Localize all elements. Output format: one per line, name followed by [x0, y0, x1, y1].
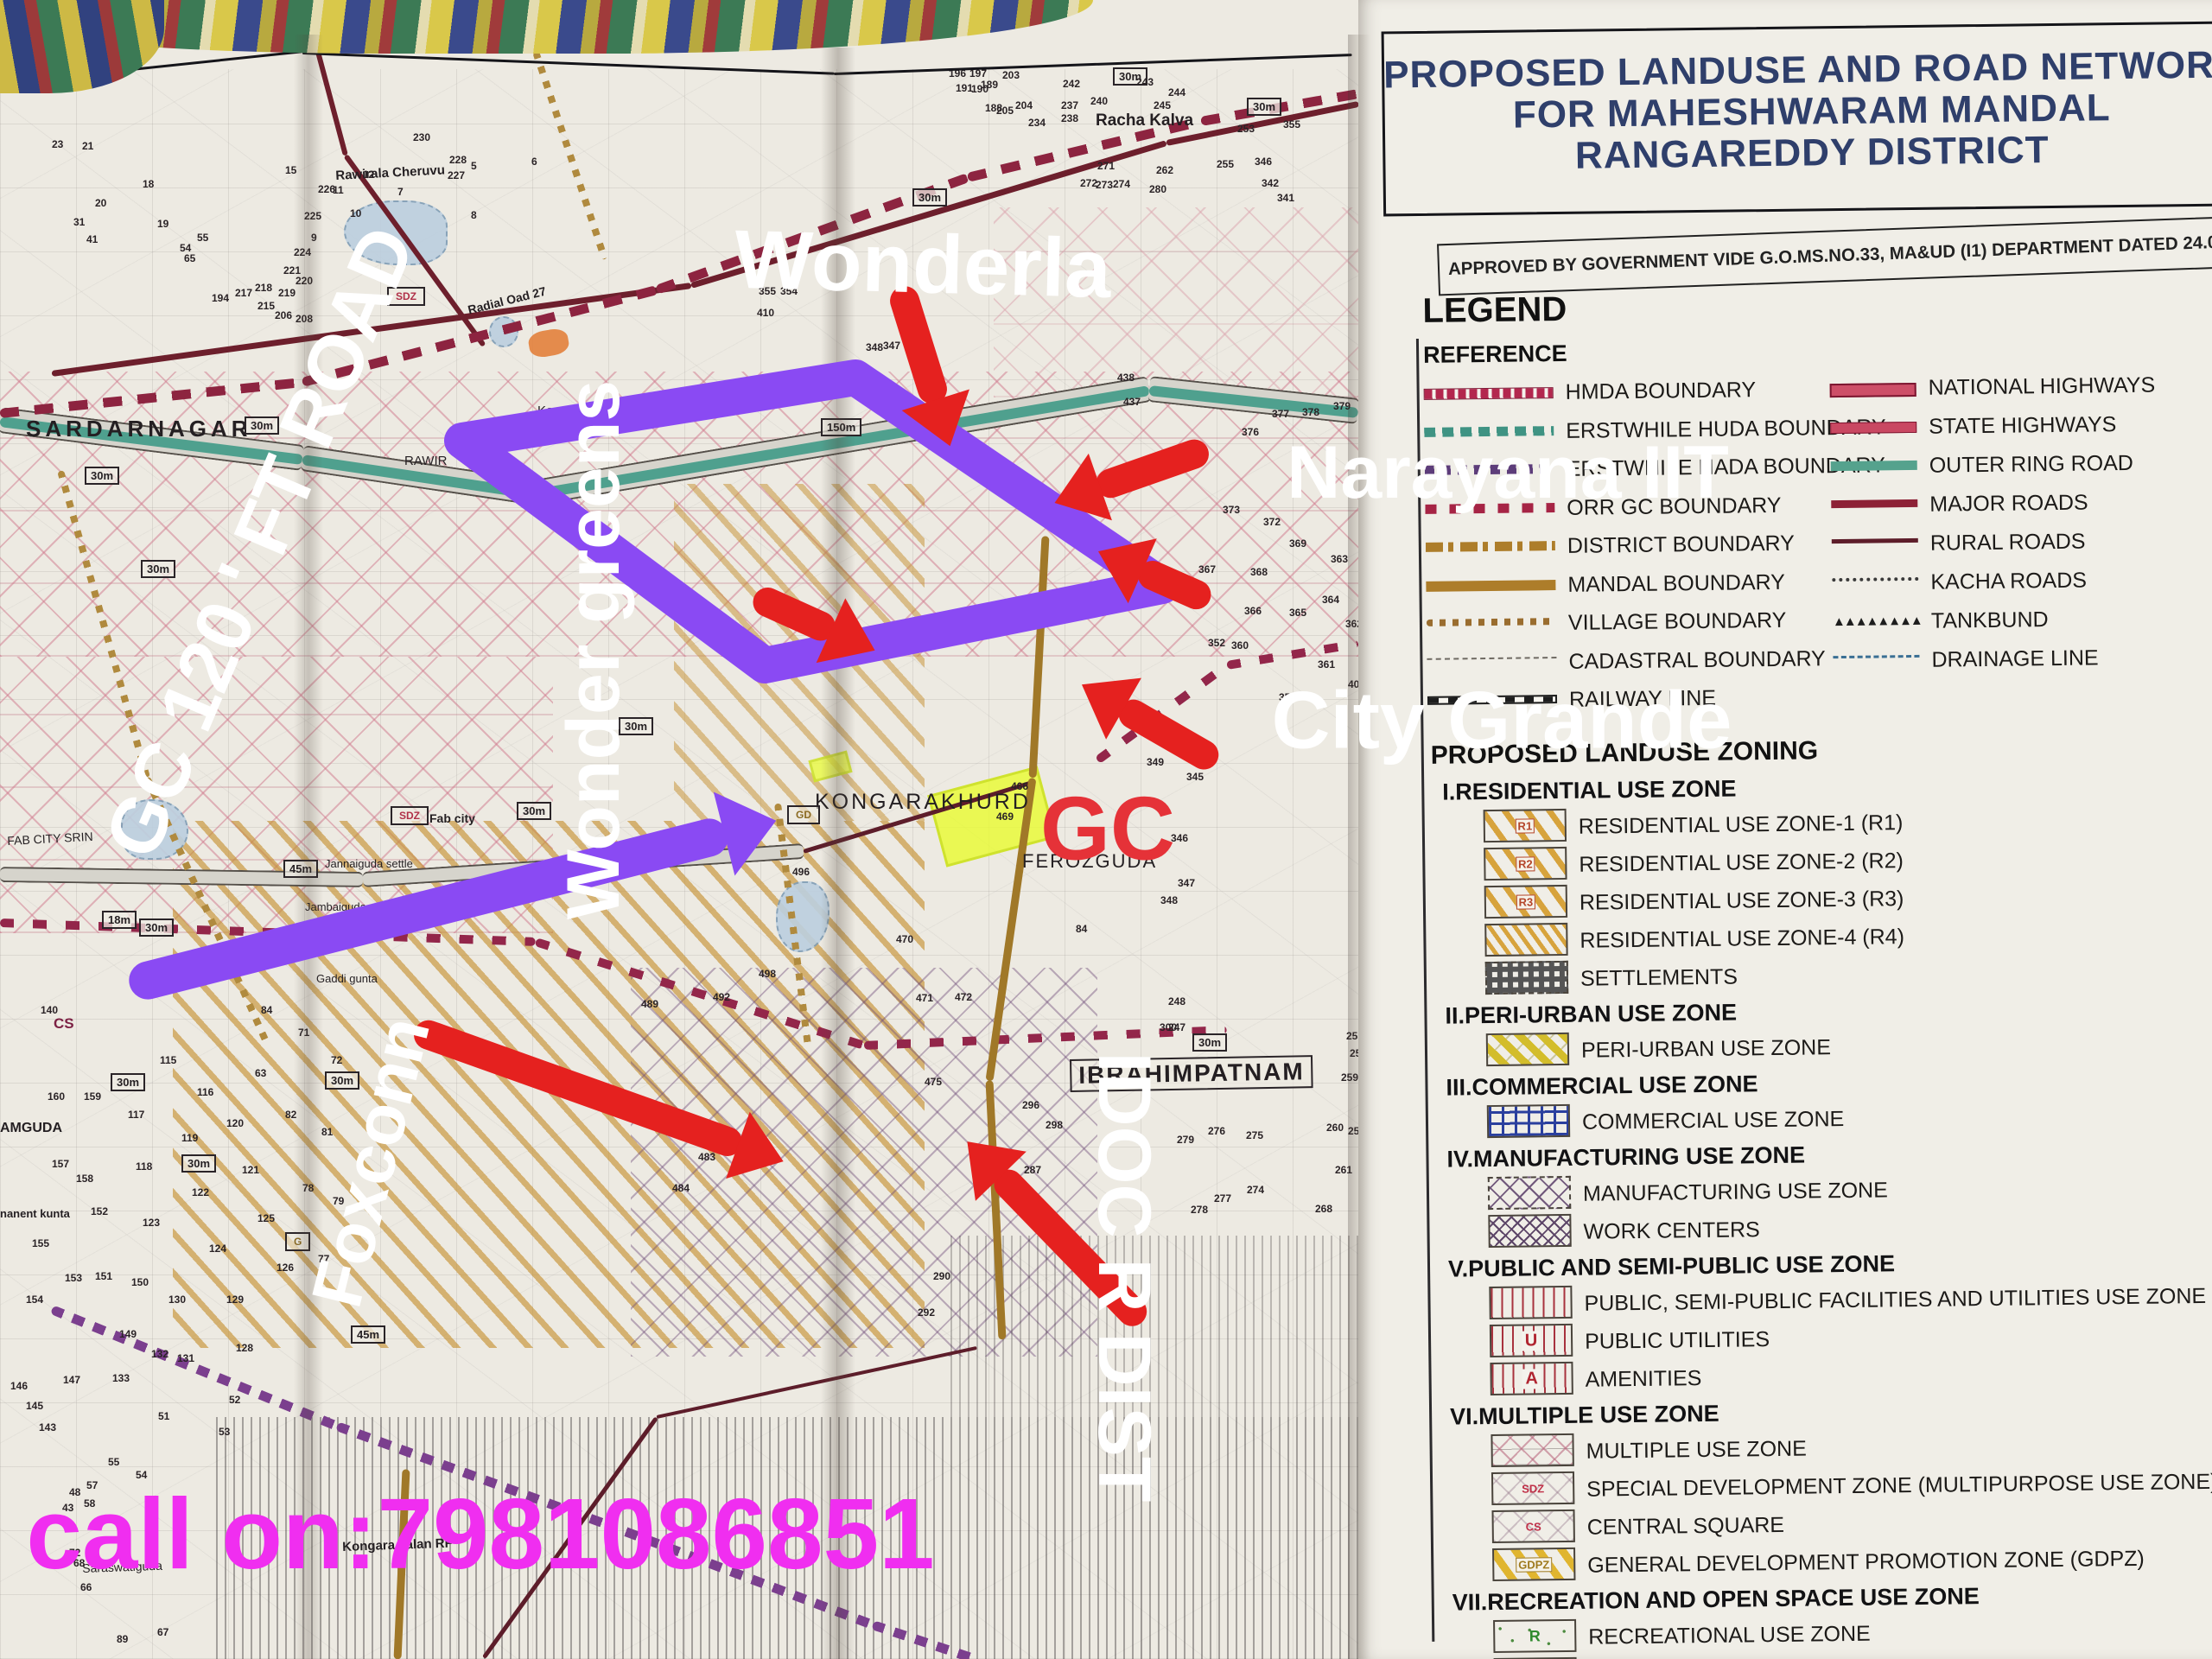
map-photo-screenshot: SARDARNAGARRacha KalvaRadial Oad 27Rawir…: [0, 0, 2212, 1659]
purple-rectangle-annotation: [0, 0, 2212, 1659]
